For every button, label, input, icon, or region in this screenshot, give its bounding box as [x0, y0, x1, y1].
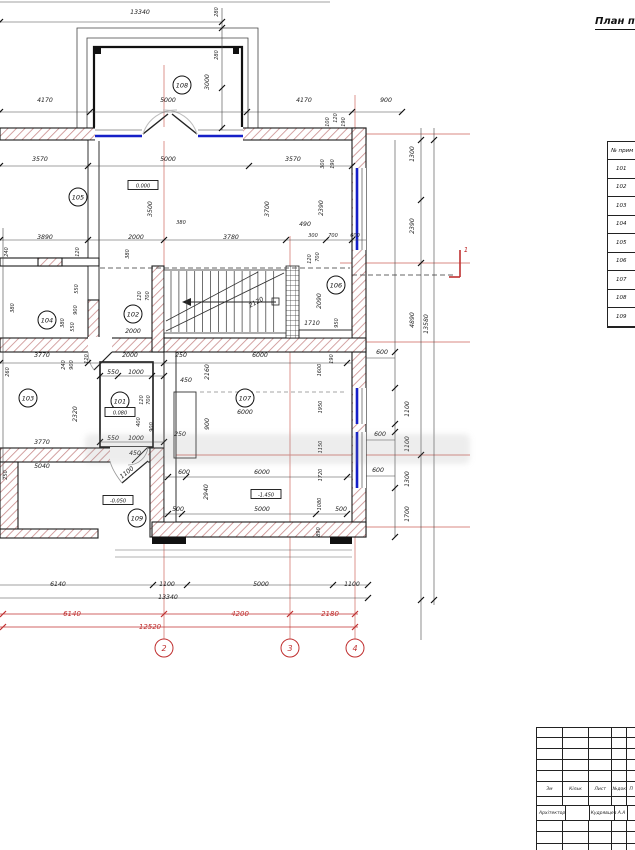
dim-label: 700 — [315, 252, 321, 262]
title-block-cell: Кудрявцев А.А — [590, 806, 615, 820]
dim-label: 2390 — [318, 200, 325, 216]
dim-label: 600 — [178, 469, 190, 476]
room-table-row: 108 — [608, 290, 635, 309]
title-block-row — [537, 844, 635, 850]
dim-label: 380 — [176, 220, 186, 226]
dim-label: 380 — [125, 249, 131, 259]
title-block-cell — [563, 797, 590, 805]
title-block-cell: П — [627, 782, 635, 796]
title-block-row — [537, 771, 635, 782]
title-block-cell — [589, 749, 612, 759]
dim-label: 700 — [328, 233, 338, 239]
title-block-cell: Лист — [589, 782, 612, 796]
dim-label: 380 — [60, 318, 66, 328]
dim-label: 900 — [380, 97, 392, 104]
dim-label: 240 — [4, 247, 10, 257]
dim-label: 120 — [139, 395, 145, 405]
room-table-row: 104 — [608, 216, 635, 235]
title-block-cell — [627, 760, 635, 770]
dim-label: 4170 — [37, 97, 53, 104]
title-block-cell — [627, 738, 635, 748]
drawing-sheet: 1 13340280280300041705000417090010012019… — [0, 0, 635, 850]
dim-label: 4200 — [231, 610, 249, 618]
dim-label: 1100 — [159, 581, 175, 588]
title-block-cell — [612, 832, 627, 843]
watermark — [85, 434, 470, 464]
title-block-row — [537, 738, 635, 749]
dim-label: 12520 — [139, 623, 162, 631]
dim-label: 6000 — [252, 352, 268, 359]
dim-label: 120 — [307, 254, 313, 264]
room-table: № прим101102103104105106107108109 — [607, 141, 635, 328]
dim-label: 260 — [5, 367, 11, 377]
dim-label: 900 — [204, 418, 211, 430]
dim-label: 120 — [75, 247, 81, 257]
title-block-cell — [537, 738, 563, 748]
title-block-cell — [612, 749, 627, 759]
room-number: 109 — [131, 514, 143, 522]
title-block-cell — [589, 738, 612, 748]
title-block-cell — [589, 760, 612, 770]
dim-label: 120 — [333, 113, 339, 123]
dim-label: 900 — [149, 422, 155, 432]
dim-label: 3770 — [34, 352, 50, 359]
title-block-cell — [563, 760, 590, 770]
dim-label: 490 — [299, 221, 311, 228]
title-block-cell — [537, 728, 563, 737]
section-label: 1 — [464, 246, 468, 254]
dim-label: 1300 — [404, 471, 411, 487]
title-block-cell — [537, 844, 563, 850]
dim-label: 900 — [69, 360, 75, 370]
room-number: 106 — [330, 281, 342, 289]
title-block-cell — [537, 797, 563, 805]
dim-label: 600 — [372, 467, 384, 474]
dim-label: 300 — [308, 233, 318, 239]
dim-label: 5000 — [253, 581, 269, 588]
dim-label: 900 — [73, 305, 79, 315]
title-block-cell — [589, 832, 612, 843]
dim-label: 6140 — [63, 610, 81, 618]
title-block-cell — [627, 821, 635, 831]
room-table-row: 107 — [608, 271, 635, 290]
title-block-row — [537, 821, 635, 832]
room-number: 105 — [72, 193, 84, 201]
porch-outline — [77, 28, 258, 137]
dim-label: 6000 — [237, 409, 253, 416]
dim-label: 3890 — [37, 234, 53, 241]
dim-label: 5000 — [160, 97, 176, 104]
dim-label: 450 — [180, 377, 192, 384]
dim-label: 2160 — [204, 364, 211, 380]
dim-label: 250 — [175, 352, 187, 359]
title-block-cell — [589, 797, 612, 805]
dim-label: 5000 — [254, 506, 270, 513]
title-block-cell — [537, 832, 563, 843]
dim-label: 3700 — [264, 201, 271, 217]
dim-label: 5000 — [160, 156, 176, 163]
dim-label: 4170 — [296, 97, 312, 104]
title-block-cell — [627, 728, 635, 737]
title-block-cell: Зм — [537, 782, 563, 796]
room-table-row: 103 — [608, 197, 635, 216]
title-block-cell — [627, 844, 635, 850]
dim-label: 2390 — [409, 218, 416, 234]
dim-label: 1100 — [404, 401, 411, 417]
floor-plan-svg: 1 13340280280300041705000417090010012019… — [0, 0, 635, 850]
title-block-row — [537, 728, 635, 738]
title-block-cell — [627, 797, 635, 805]
room-table-row: 106 — [608, 253, 635, 272]
dim-label: 120 — [84, 354, 90, 364]
dim-label: 550 — [70, 322, 76, 332]
title-block-cell — [612, 728, 627, 737]
grid-bubble-label: 2 — [161, 644, 166, 653]
room-number: 102 — [127, 310, 139, 318]
dim-label: 3770 — [34, 439, 50, 446]
dim-label: 13340 — [130, 9, 150, 16]
title-block-cell — [537, 821, 563, 831]
dim-label: 1300 — [409, 146, 416, 162]
grid-bubbles: 234 — [155, 639, 364, 657]
title-block-cell — [589, 821, 612, 831]
dim-label: 1720 — [318, 469, 324, 482]
title-block-cell — [627, 832, 635, 843]
title-block-cell — [537, 749, 563, 759]
dim-label: 13340 — [158, 594, 178, 601]
title-block-cell — [628, 806, 635, 820]
dim-label: 1000 — [128, 369, 144, 376]
dim-label: 190 — [330, 159, 336, 169]
title-block-cell — [563, 749, 590, 759]
room-number: 104 — [41, 316, 53, 324]
title-block-cell: Кільк — [563, 782, 590, 796]
dim-label: 3570 — [285, 156, 301, 163]
title-block-row: АрхітекторКудрявцев А.А — [537, 806, 635, 821]
dim-label: 240 — [61, 360, 67, 370]
dim-label: 1100 — [344, 581, 360, 588]
title-block-cell — [563, 771, 590, 781]
level-value: 0.000 — [136, 184, 150, 190]
dim-label: 280 — [214, 50, 220, 60]
title-block-cell: №док — [612, 782, 627, 796]
dim-label: 1080 — [317, 498, 323, 511]
grid-bubble-label: 4 — [352, 644, 357, 653]
title-block-cell — [589, 728, 612, 737]
room-table-row: 101 — [608, 160, 635, 179]
title-block-cell — [589, 844, 612, 850]
title-block-cell — [537, 760, 563, 770]
dim-label: 400 — [136, 417, 142, 427]
title-block-cell — [615, 806, 629, 820]
grid-bubble-label: 3 — [287, 644, 292, 653]
dim-label: 6140 — [50, 581, 66, 588]
title-block-cell — [627, 771, 635, 781]
dim-label: 3500 — [147, 201, 154, 217]
dim-label: 2320 — [72, 406, 79, 422]
room-number: 107 — [239, 394, 252, 402]
dim-label: 550 — [74, 284, 80, 294]
dim-label: 3570 — [32, 156, 48, 163]
title-block-cell — [612, 738, 627, 748]
dim-label: 2000 — [128, 234, 144, 241]
dim-label: 190 — [329, 354, 335, 364]
staircase — [164, 270, 286, 333]
section-marker: 1 — [449, 246, 468, 277]
title-block-cell — [563, 844, 590, 850]
room-table-row: 105 — [608, 234, 635, 253]
level-value: 0.080 — [113, 411, 127, 417]
title-block-cell — [612, 797, 627, 805]
dim-label: 1710 — [304, 320, 320, 327]
dim-label: 300 — [320, 159, 326, 169]
drawing-title: План п — [595, 16, 635, 30]
dim-label: 600 — [350, 233, 360, 239]
title-block-row — [537, 797, 635, 806]
title-block-cell: Архітектор — [537, 806, 566, 820]
dim-label: 100 — [325, 117, 331, 127]
title-block-cell — [612, 771, 627, 781]
dim-label: 700 — [146, 395, 152, 405]
title-block-cell — [563, 738, 590, 748]
level-value: -1.450 — [258, 493, 274, 499]
title-block-row — [537, 832, 635, 844]
dim-label: 190 — [341, 117, 347, 127]
title-block: ЗмКількЛист№докПАрхітекторКудрявцев А.А — [536, 727, 635, 850]
dim-label: 1700 — [404, 506, 411, 522]
title-block-row: ЗмКількЛист№докП — [537, 782, 635, 797]
dim-label: 1600 — [317, 364, 323, 377]
title-block-cell — [563, 728, 590, 737]
dim-label: 280 — [214, 7, 220, 17]
room-table-row: 102 — [608, 179, 635, 198]
title-block-cell — [589, 771, 612, 781]
room-number: 101 — [114, 397, 126, 405]
dim-label: 3000 — [204, 74, 211, 90]
title-block-cell — [537, 771, 563, 781]
dim-label: 120 — [137, 291, 143, 301]
title-block-cell — [563, 832, 590, 843]
dim-label: 380 — [10, 303, 16, 313]
dim-label: 2090 — [316, 293, 323, 309]
title-block-cell — [566, 806, 590, 820]
dim-label: 13580 — [423, 314, 430, 334]
dim-label: 500 — [335, 506, 347, 513]
dim-label: 2940 — [203, 484, 210, 500]
dim-label: 550 — [107, 369, 119, 376]
title-block-row — [537, 749, 635, 760]
dim-label: 2000 — [122, 352, 138, 359]
dim-label: 4890 — [409, 312, 416, 328]
dim-label: 500 — [172, 506, 184, 513]
level-value: -0.050 — [110, 499, 126, 505]
title-block-cell — [612, 760, 627, 770]
dim-label: 6000 — [254, 469, 270, 476]
dim-label: 250 — [3, 470, 9, 480]
room-number: 108 — [176, 81, 188, 89]
dim-label: 2000 — [125, 328, 141, 335]
dim-label: 3780 — [223, 234, 239, 241]
title-block-cell — [612, 844, 627, 850]
title-block-cell — [627, 749, 635, 759]
dim-label: 700 — [145, 291, 151, 301]
dim-label: 2180 — [321, 610, 339, 618]
dim-label: 1950 — [318, 401, 324, 414]
room-table-row: 109 — [608, 308, 635, 327]
dim-label: 950 — [334, 318, 340, 328]
room-number: 103 — [22, 394, 34, 402]
title-block-cell — [612, 821, 627, 831]
title-block-cell — [563, 821, 590, 831]
title-block-row — [537, 760, 635, 771]
dim-label: 890 — [316, 527, 322, 537]
room-table-header: № прим — [608, 142, 635, 160]
dim-label: 5040 — [34, 463, 50, 470]
dim-label: 600 — [376, 349, 388, 356]
